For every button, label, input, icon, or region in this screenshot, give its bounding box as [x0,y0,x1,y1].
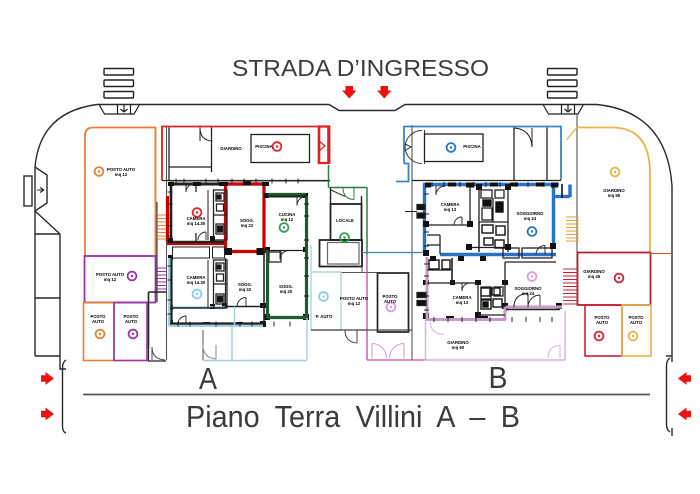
svg-text:mq 24: mq 24 [524,216,537,221]
svg-text:mq 13: mq 13 [444,207,457,212]
svg-text:mq 12: mq 12 [281,217,294,222]
svg-text:mq 12: mq 12 [348,301,361,306]
svg-text:mq 13: mq 13 [456,300,469,305]
svg-text:mq 22: mq 22 [241,223,254,228]
svg-text:AUTO: AUTO [125,319,138,324]
svg-text:STRADA D’INGRESSO: STRADA D’INGRESSO [232,55,489,81]
svg-text:AUTO: AUTO [92,319,105,324]
svg-text:mq 12: mq 12 [115,172,128,177]
svg-text:AUTO: AUTO [630,320,643,325]
svg-text:LOCALE: LOCALE [336,218,354,223]
svg-text:mq 12: mq 12 [104,277,117,282]
svg-text:mq 20: mq 20 [280,289,293,294]
svg-text:GIARDINO: GIARDINO [220,146,242,151]
svg-text:mq 14.30: mq 14.30 [187,221,206,226]
svg-text:mq 60: mq 60 [452,345,465,350]
svg-text:mq 14.30: mq 14.30 [187,280,206,285]
svg-text:mq 24: mq 24 [522,291,535,296]
svg-text:Piano Terra Villini A – B: Piano Terra Villini A – B [186,399,520,434]
svg-text:mq 22: mq 22 [239,287,252,292]
svg-text:AUTO: AUTO [384,299,397,304]
svg-text:B: B [489,360,508,395]
svg-text:P. AUTO: P. AUTO [316,314,333,319]
svg-text:mq 95: mq 95 [608,193,621,198]
svg-text:PISCINA: PISCINA [463,144,480,149]
svg-text:mq 45: mq 45 [588,274,601,279]
svg-text:AUTO: AUTO [596,320,609,325]
svg-text:PISCINA: PISCINA [255,144,272,149]
svg-text:A: A [199,361,217,396]
